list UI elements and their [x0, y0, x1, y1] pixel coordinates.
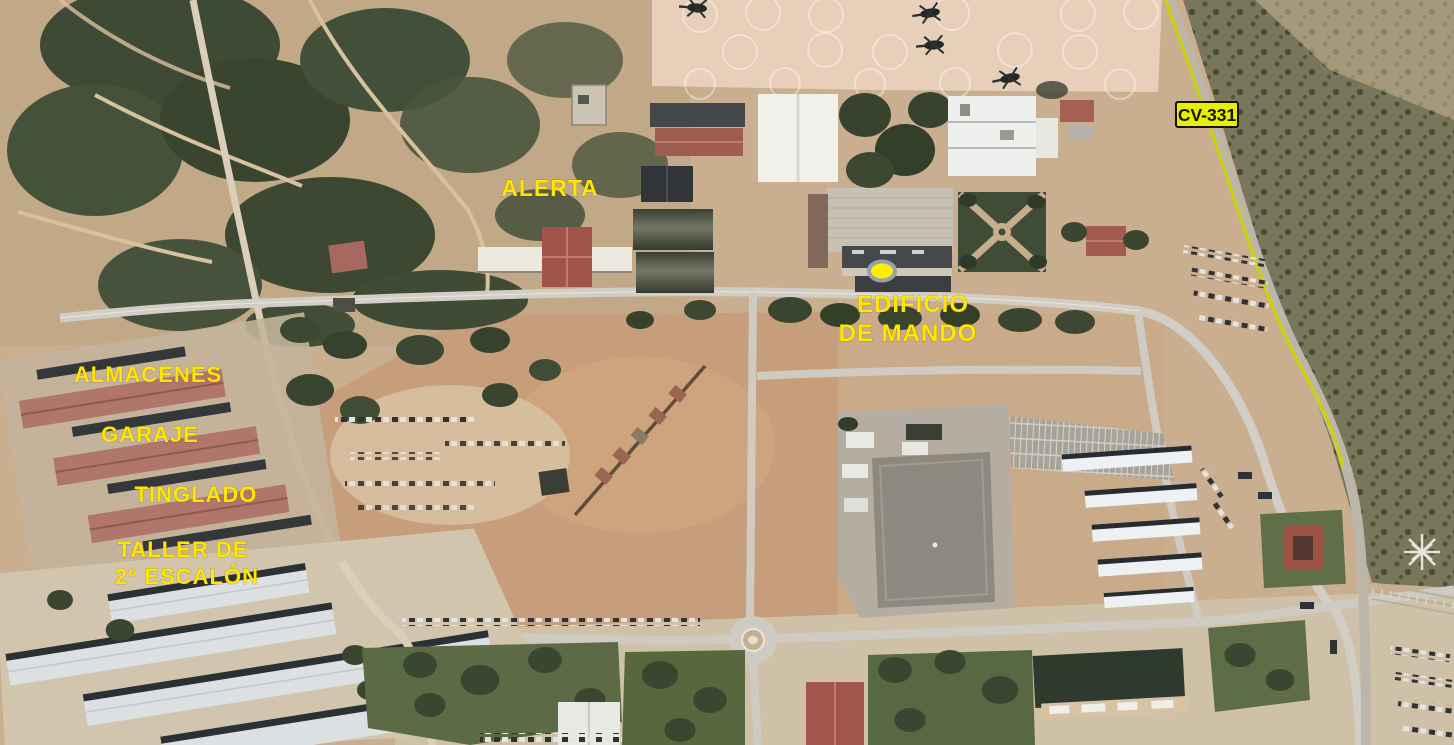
- small-building: [846, 432, 874, 448]
- edificio-de-mando-building: [842, 246, 952, 268]
- tall-building: [808, 194, 828, 268]
- small-building: [906, 424, 942, 440]
- barrel-hangar: [636, 252, 714, 293]
- small-shed: [333, 298, 355, 312]
- road-badge-cv331: CV-331: [1176, 102, 1238, 127]
- label-alerta: ALERTA: [501, 175, 599, 201]
- label-edificio-de-mando-line2: DE MANDO: [839, 320, 978, 347]
- edificio-de-mando-marker: [869, 262, 895, 281]
- red-roof-building: [1060, 100, 1094, 122]
- label-edificio-de-mando-line1: EDIFICIO: [857, 291, 969, 318]
- pavement-star-pattern: [1404, 534, 1440, 570]
- lawn: [1208, 620, 1310, 712]
- barrel-hangar: [633, 209, 713, 250]
- drill-square: [838, 404, 1015, 618]
- walled-compound: [572, 85, 606, 125]
- dark-shed: [538, 468, 569, 496]
- label-almacenes: ALMACENES: [74, 362, 222, 387]
- label-tinglado: TINGLADO: [135, 482, 258, 507]
- central-road: [750, 292, 753, 618]
- label-taller-line2: 2º ESCALÓN: [115, 564, 259, 589]
- helicopter-shadow: [1036, 81, 1068, 99]
- long-dark-building: [1033, 648, 1190, 720]
- parked-car-row: [402, 618, 700, 626]
- satellite-map: ALERTA EDIFICIO DE MANDO ALMACENES GARAJ…: [0, 0, 1454, 745]
- label-taller-line1: TALLER DE: [118, 537, 249, 562]
- label-garaje: GARAJE: [101, 422, 199, 447]
- road-badge-text: CV-331: [1178, 105, 1237, 125]
- helipad-apron: [652, 0, 1162, 99]
- dark-roof-building: [650, 103, 745, 127]
- red-roof-building: [328, 241, 368, 274]
- garden-cross-paths: [958, 192, 1047, 272]
